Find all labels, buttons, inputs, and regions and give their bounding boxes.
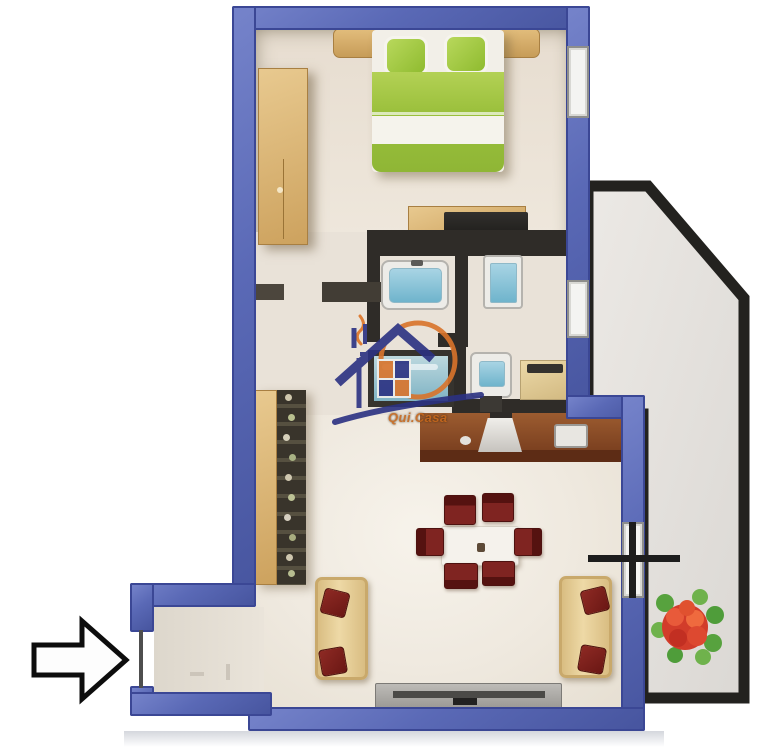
floor-plan: Qui.Casa	[0, 0, 784, 753]
sofa-pillow	[577, 644, 607, 675]
entry-wall-bottom	[130, 692, 272, 716]
house-logo-icon	[332, 296, 484, 426]
wardrobe	[258, 68, 308, 245]
wall-bottom	[248, 707, 645, 731]
entry-door	[139, 630, 143, 688]
blanket-fold	[372, 112, 504, 115]
watermark-text: Qui.Casa	[388, 410, 448, 425]
kitchen-sink	[554, 424, 588, 448]
entry-wall-left-upper	[130, 583, 154, 632]
sofa-left	[315, 577, 368, 680]
watermark: Qui.Casa	[332, 296, 484, 438]
bed	[372, 30, 504, 172]
entry-floor	[154, 607, 264, 695]
sofa-pillow	[579, 585, 610, 616]
bookshelf-side	[255, 390, 277, 585]
bookshelf-shelves	[277, 390, 306, 585]
wall-left	[232, 6, 256, 607]
shower	[483, 255, 523, 309]
dining-chair	[444, 563, 478, 589]
washing-machine	[520, 360, 568, 400]
dining-table	[441, 526, 519, 566]
bed-pillow	[384, 36, 428, 76]
blanket-stripe	[372, 116, 504, 144]
sofa-right	[559, 576, 612, 678]
wall-top	[232, 6, 590, 30]
bedroom-window	[567, 46, 589, 118]
entrance-arrow-icon	[28, 612, 132, 708]
dining-chair	[444, 495, 476, 525]
dining-chair	[416, 528, 444, 556]
bedroom-door-stub	[256, 284, 284, 300]
bookshelf-items	[285, 394, 292, 401]
shower-water	[490, 263, 517, 303]
table-centerpiece	[477, 543, 485, 552]
dining-chair	[514, 528, 542, 556]
flower-plant	[645, 585, 730, 675]
ground-shadow	[124, 731, 664, 747]
bed-pillow	[444, 34, 488, 74]
wardrobe-handle	[277, 187, 283, 193]
bed-blanket	[372, 72, 504, 172]
floor-mark	[226, 664, 230, 680]
washing-machine-panel	[527, 364, 563, 373]
dining-chair	[482, 493, 514, 522]
bedroom-bathroom-wall	[367, 230, 588, 256]
sofa-pillow	[318, 646, 348, 677]
console-groove	[393, 691, 545, 698]
bathtub-tap	[411, 260, 423, 266]
floor-mark	[190, 672, 204, 676]
console-device	[453, 698, 477, 705]
hallway-window	[567, 280, 589, 338]
wardrobe-door-seam	[283, 159, 284, 239]
bookshelf	[255, 390, 306, 585]
dining-chair	[482, 561, 515, 586]
sofa-pillow	[319, 587, 351, 619]
window-cross-icon	[629, 522, 636, 598]
